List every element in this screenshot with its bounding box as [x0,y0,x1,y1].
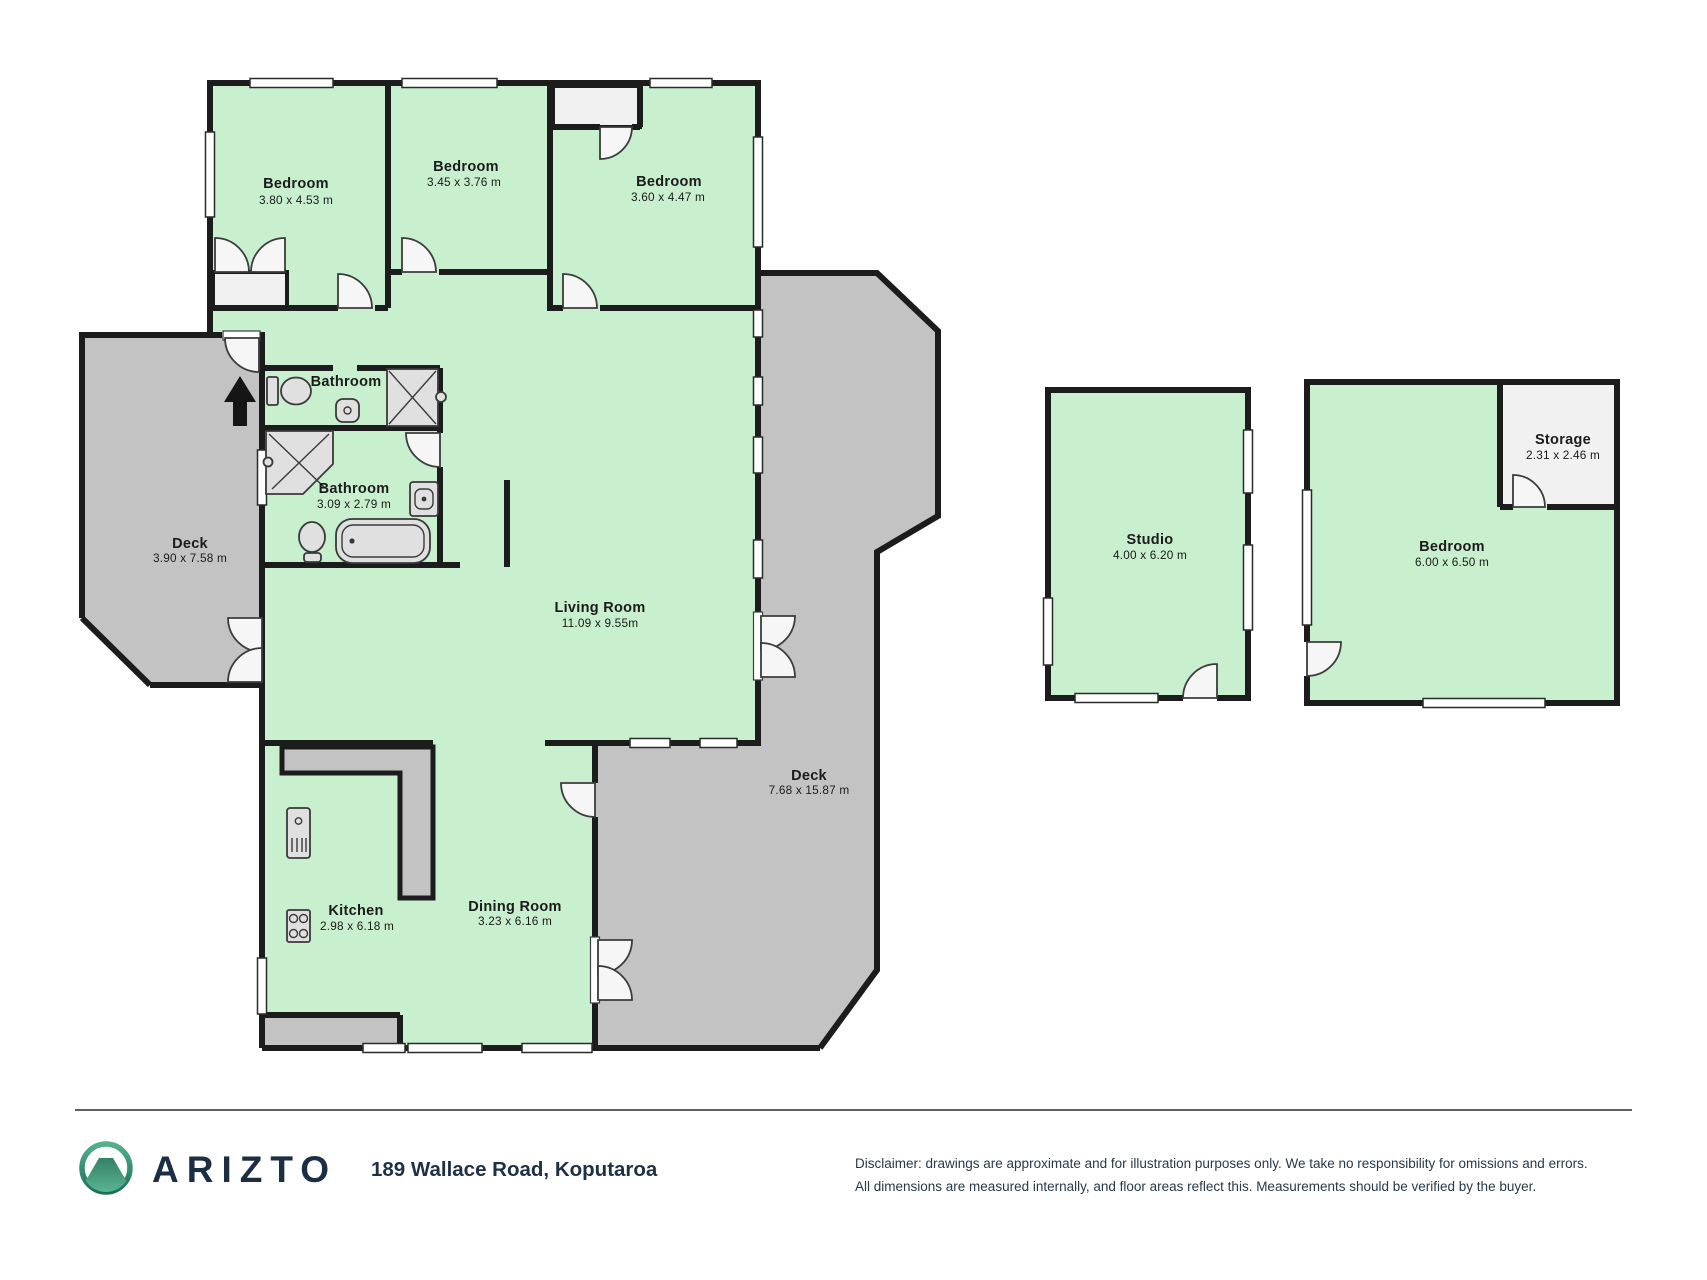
window [754,437,763,473]
toilet-base [304,553,321,562]
floorplan-studio: Studio 4.00 x 6.20 m [1044,387,1253,703]
toilet-icon [267,377,278,405]
window [754,137,763,247]
stove-icon [287,910,310,942]
closet-bedroom1 [213,272,287,308]
room-dining-dims: 3.23 x 6.16 m [478,914,552,928]
room-bedroom3-name: Bedroom [636,174,702,190]
window [250,79,333,88]
room-bedroom2-dims: 3.45 x 3.76 m [427,175,501,189]
room-bathroom1-name: Bathroom [311,374,382,390]
footer: ARIZTO 189 Wallace Road, Koputaroa Discl… [75,1110,1632,1194]
room-storage-dims: 2.31 x 2.46 m [1526,448,1600,462]
window [1423,699,1545,708]
window [402,79,497,88]
room-living-name: Living Room [554,600,645,616]
room-bathroom2-dims: 3.09 x 2.79 m [317,497,391,511]
room-studio-name: Studio [1127,532,1174,548]
room-bedroom4-name: Bedroom [1419,539,1485,555]
room-storage-name: Storage [1535,432,1591,448]
brand-logotype: ARIZTO [152,1149,337,1190]
window [700,739,737,748]
room-dining-name: Dining Room [468,899,562,915]
window [522,1044,592,1053]
window [258,958,267,1014]
arizto-logo-icon [78,1144,134,1194]
room-deck-right-name: Deck [791,768,827,784]
window [1244,545,1253,630]
disclaimer-line-2: All dimensions are measured internally, … [855,1179,1536,1194]
shower-head-icon [264,458,273,467]
room-kitchen-dims: 2.98 x 6.18 m [320,919,394,933]
floorplan-canvas: Bedroom 3.80 x 4.53 m Bedroom 3.45 x 3.7… [0,0,1707,1280]
room-deck-right-dims: 7.68 x 15.87 m [769,783,850,797]
toilet-icon [281,378,311,405]
shower-head-icon [436,392,446,402]
room-studio-dims: 4.00 x 6.20 m [1113,548,1187,562]
window [1303,490,1312,625]
window [754,377,763,405]
floorplan-sleepout: Storage 2.31 x 2.46 m Bedroom 6.00 x 6.5… [1303,379,1618,708]
sink-icon [336,399,359,422]
room-bedroom4-dims: 6.00 x 6.50 m [1415,555,1489,569]
window [1044,598,1053,665]
closet-bedroom3 [553,86,640,127]
window [754,540,763,578]
toilet-icon [299,522,325,552]
window [206,132,215,217]
property-address: 189 Wallace Road, Koputaroa [371,1158,658,1181]
room-kitchen-name: Kitchen [328,903,383,919]
window [1244,430,1253,493]
window [363,1044,405,1053]
window [754,310,763,337]
window [630,739,670,748]
window [1075,694,1158,703]
window [650,79,712,88]
room-bedroom2-name: Bedroom [433,159,499,175]
room-bathroom2-name: Bathroom [319,481,390,497]
disclaimer-line-1: Disclaimer: drawings are approximate and… [855,1156,1588,1171]
window [408,1044,482,1053]
room-bedroom3-dims: 3.60 x 4.47 m [631,190,705,204]
room-deck-left-name: Deck [172,536,208,552]
room-living-dims: 11.09 x 9.55m [562,616,639,630]
room-bedroom1-dims: 3.80 x 4.53 m [259,193,333,207]
floorplan-main-house: Bedroom 3.80 x 4.53 m Bedroom 3.45 x 3.7… [82,79,938,1053]
room-bedroom1-name: Bedroom [263,176,329,192]
room-deck-left-dims: 3.90 x 7.58 m [153,551,227,565]
